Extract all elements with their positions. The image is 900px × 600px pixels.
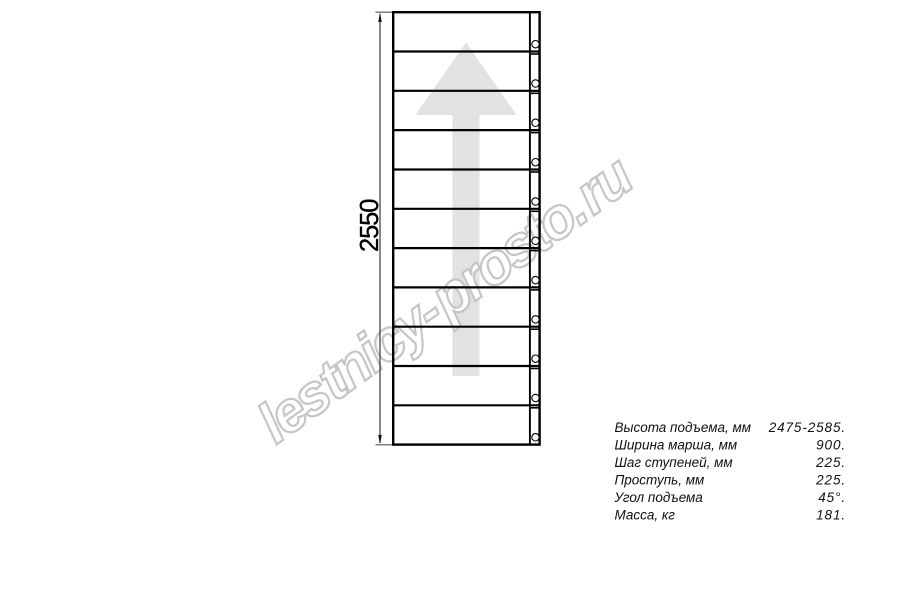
svg-text:Масса, кг: Масса, кг: [615, 508, 676, 523]
svg-text:Проступь, мм: Проступь, мм: [615, 473, 705, 488]
svg-text:2475-2585.: 2475-2585.: [768, 420, 846, 435]
svg-text:45°.: 45°.: [818, 490, 846, 505]
svg-text:900.: 900.: [816, 438, 846, 453]
svg-text:Шаг ступеней, мм: Шаг ступеней, мм: [615, 455, 733, 470]
svg-text:2550: 2550: [356, 199, 384, 252]
svg-text:Ширина марша, мм: Ширина марша, мм: [615, 438, 738, 453]
svg-text:225.: 225.: [815, 455, 846, 470]
svg-text:225.: 225.: [815, 473, 846, 488]
svg-text:181.: 181.: [816, 508, 846, 523]
svg-text:Высота подъема, мм: Высота подъема, мм: [615, 420, 751, 435]
svg-text:Угол подъема: Угол подъема: [614, 490, 704, 505]
